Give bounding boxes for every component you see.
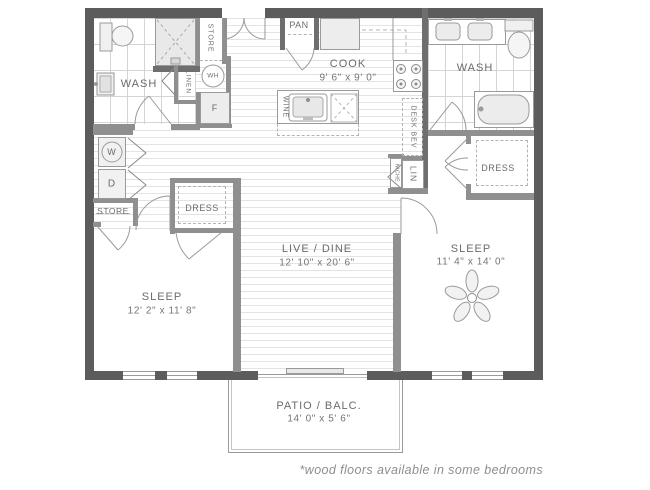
room-dims-sleep-right: 11' 4" x 14' 0" xyxy=(437,257,506,268)
dressR-door-lower xyxy=(445,158,468,190)
shower-drain xyxy=(171,58,180,64)
stove-burners xyxy=(397,65,421,89)
room-label-patio: PATIO / BALC. xyxy=(276,400,361,412)
closet-label-dress-left: DRESS xyxy=(185,203,219,213)
bathtub-fixture xyxy=(478,95,529,124)
pantry-door xyxy=(286,48,314,70)
appliance-label-wh: WH xyxy=(207,73,218,80)
bathR-door xyxy=(430,102,466,130)
appliance-label-fridge: F xyxy=(212,103,219,113)
room-dims-live-dine: 12' 10" x 20' 6" xyxy=(279,258,355,269)
room-dims-cook: 9' 6" x 9' 0" xyxy=(319,73,376,84)
wd-bifold-upper xyxy=(128,138,146,168)
room-label-live-dine: LIVE / DINE xyxy=(282,243,352,255)
dressR-door-upper xyxy=(445,138,468,170)
linen-door xyxy=(162,66,176,96)
room-label-sleep-right: SLEEP xyxy=(451,243,491,255)
storeL-door xyxy=(97,226,130,250)
niche-label-desk-bev: DESK BEV xyxy=(410,105,417,148)
closet-label-lin: LIN xyxy=(409,166,418,182)
appliance-label-dryer: D xyxy=(108,179,116,190)
room-label-cook: COOK xyxy=(330,58,366,70)
toilet-fixture xyxy=(100,23,133,51)
footnote: *wood floors available in some bedrooms xyxy=(300,463,544,477)
dishwasher-fixture xyxy=(331,94,357,122)
room-dims-sleep-left: 12' 2" x 11' 8" xyxy=(128,306,197,317)
closet-label-store-top: STORE xyxy=(207,24,214,53)
double-vanity-sinks xyxy=(436,18,492,40)
closet-label-dress-right: DRESS xyxy=(481,163,515,173)
sleepR-door xyxy=(401,198,437,234)
room-dims-patio: 14' 0" x 5' 6" xyxy=(287,414,350,425)
shower-marks xyxy=(157,20,194,64)
island-sink-fixture xyxy=(289,94,327,121)
ceiling-fan-icon xyxy=(444,270,501,324)
wd-bifold-lower xyxy=(128,170,146,200)
sink-fixture xyxy=(94,73,114,95)
bathL-door xyxy=(135,96,171,124)
room-label-wash-right: WASH xyxy=(457,62,494,74)
floor-plan: WASH WASH COOK 9' 6" x 9' 0" LIVE / DINE… xyxy=(0,0,650,490)
closet-label-store-left: STORE xyxy=(97,206,129,216)
sleepL-door xyxy=(136,196,170,231)
upper-cabinet-dashed xyxy=(362,30,406,56)
entry-door-left xyxy=(223,18,244,39)
room-label-wash-left: WASH xyxy=(121,78,158,90)
appliance-label-washer: W xyxy=(107,147,117,157)
bifold-doors xyxy=(128,66,402,200)
toilet-fixture-right xyxy=(505,20,533,58)
entry-door-right xyxy=(244,18,265,39)
label-niche: NICHE xyxy=(394,164,399,182)
dressL-door xyxy=(176,232,222,259)
island-label-wine: WINE xyxy=(282,96,289,118)
closet-label-linen: LINEN xyxy=(184,70,191,94)
room-label-sleep-left: SLEEP xyxy=(142,291,182,303)
closet-label-pantry: PAN xyxy=(289,20,308,30)
